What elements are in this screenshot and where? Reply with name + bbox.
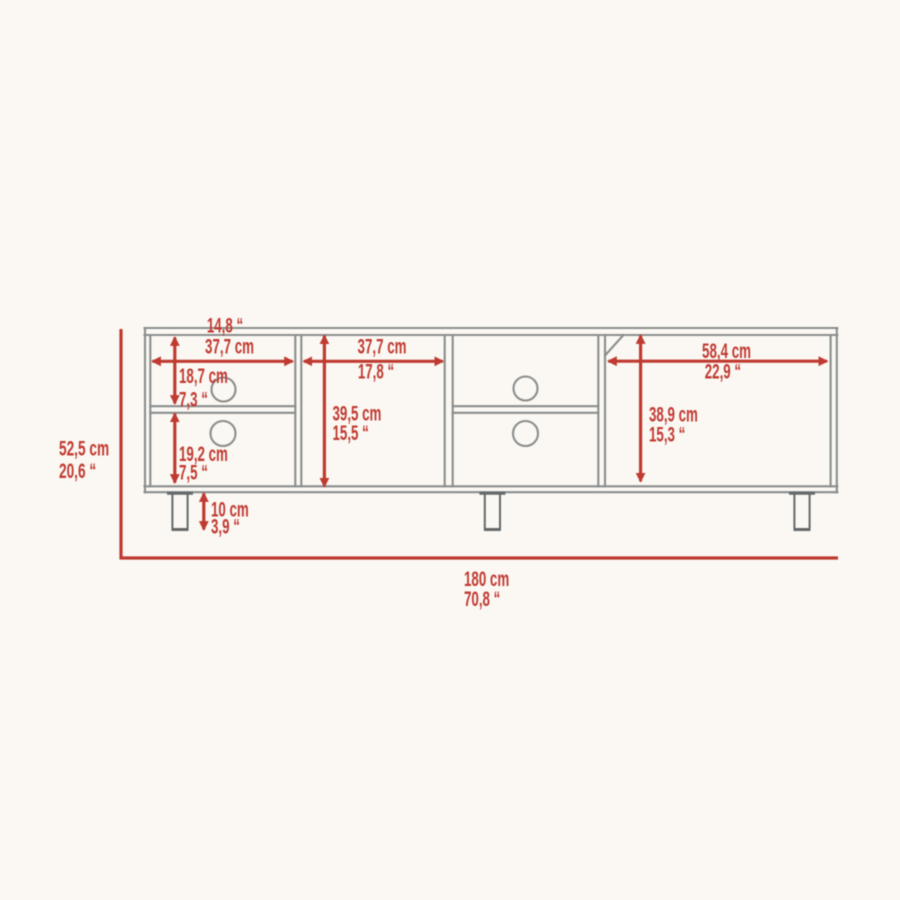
svg-text:20,6 “: 20,6 “ xyxy=(59,459,96,483)
svg-text:52,5 cm: 52,5 cm xyxy=(59,436,109,460)
svg-text:15,3 “: 15,3 “ xyxy=(649,422,685,446)
svg-text:22,9 “: 22,9 “ xyxy=(705,359,741,383)
svg-text:18,7 cm: 18,7 cm xyxy=(179,364,228,388)
svg-text:37,7 cm: 37,7 cm xyxy=(358,334,407,358)
svg-text:7,5 “: 7,5 “ xyxy=(179,460,208,484)
svg-text:70,8 “: 70,8 “ xyxy=(464,587,500,611)
svg-text:3,9 “: 3,9 “ xyxy=(211,514,240,538)
svg-text:17,8 “: 17,8 “ xyxy=(358,359,394,383)
svg-text:15,5 “: 15,5 “ xyxy=(333,421,369,445)
svg-text:37,7 cm: 37,7 cm xyxy=(205,334,254,358)
svg-text:7,3 “: 7,3 “ xyxy=(179,387,208,411)
